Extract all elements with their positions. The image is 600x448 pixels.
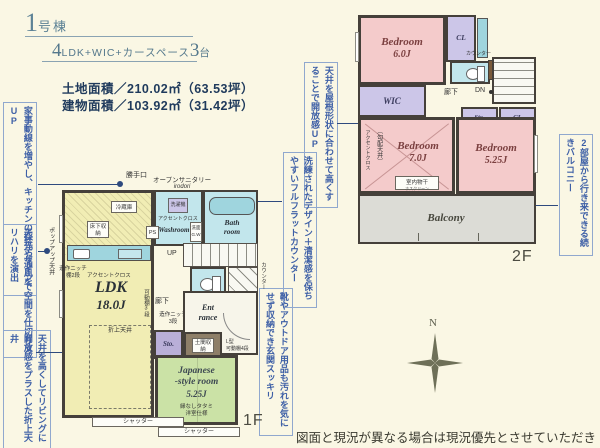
window xyxy=(355,32,359,62)
room-bedroom-6: Bedroom 6.0J xyxy=(358,15,446,85)
dn-dot xyxy=(489,90,493,94)
niche-kitchen-label: 造作ニッチ 棚2段 xyxy=(54,266,92,280)
compass-north-label: N xyxy=(429,317,437,329)
bathtub xyxy=(209,197,255,215)
entrance-door-arc xyxy=(223,313,250,340)
japanese-note: 縁なしタタミ 洋室仕様 xyxy=(158,404,235,418)
cl-top-label: CL xyxy=(448,33,474,42)
room-washroom: 洗濯機 アクセントクロス Washroom 洗面 G.W xyxy=(154,190,203,246)
indoor-drying-label: 室内物干 xyxy=(396,178,438,186)
shutter-label-ldk: シャッター xyxy=(92,417,184,427)
japanese-note-line1: 縁なしタタミ xyxy=(158,404,235,411)
ps-box: PS xyxy=(146,226,159,239)
entrance-line1: Ent xyxy=(191,303,225,313)
bathroom-line2: room xyxy=(213,227,251,236)
fridge-label: 冷蔵庫 xyxy=(111,201,137,213)
ldk-size: 18.0J xyxy=(83,297,139,313)
open-sanitary-label: オープンサニタリー irodori xyxy=(153,174,211,190)
bedroom6-name: Bedroom xyxy=(361,36,443,49)
accent-cloth-2f-label: アクセントクロス xyxy=(364,130,370,170)
wic-label: WIC xyxy=(360,96,424,107)
indoor-drying-box: 室内物干 ホスクリーン xyxy=(395,176,439,190)
bedroom7-name: Bedroom xyxy=(385,140,451,153)
title-underline xyxy=(25,36,193,37)
room-bedroom-7: アクセントクロス 〔勾配天井〕 Bedroom 7.0J 室内物干 ホスクリーン xyxy=(358,117,455,194)
layout-underline xyxy=(42,61,197,62)
compass-rose: N xyxy=(405,315,465,402)
doma-storage-text: 土間収納 xyxy=(195,340,212,353)
vanity-line1: 洗面 xyxy=(191,225,201,232)
leader-line xyxy=(38,251,47,252)
ldk-name: LDK xyxy=(83,278,139,297)
japanese-room-label: Japanese -style room 5.25J xyxy=(158,366,235,400)
entrance-label: Ent rance xyxy=(191,303,225,322)
window xyxy=(59,215,63,243)
popup-ceiling-label: ポップアップ天井 xyxy=(47,227,54,275)
doma-storage-label: 土間収納 xyxy=(192,338,214,353)
annotation-folded-ceiling: 天井を高くしてリビングに開放感をプラスした折上天井 xyxy=(3,330,51,448)
room-bathroom: Bath room xyxy=(203,190,258,246)
room-wic: WIC xyxy=(358,85,426,117)
l-shelf-line2: 可動棚4段 xyxy=(226,346,249,353)
bedroom5-name: Bedroom xyxy=(459,142,533,155)
l-shelf-label: L型 可動棚4段 xyxy=(226,339,249,352)
layout-tail: 台 xyxy=(199,47,211,59)
building-number: 1 xyxy=(25,8,38,37)
japanese-line2: -style room xyxy=(158,377,235,388)
open-sanitary-text: オープンサニタリー xyxy=(153,174,211,184)
floor-1f-tag: 1F xyxy=(243,412,264,430)
hallway-2f-label: 廊下 xyxy=(444,87,458,97)
entrance-line2: rance xyxy=(191,313,225,323)
layout-rooms-number: 4 xyxy=(52,40,62,61)
kitchen-counter xyxy=(67,245,151,261)
balcony: Balcony xyxy=(358,194,536,244)
hallway-1f-label: 廊下 xyxy=(155,296,169,306)
vanity-box: 洗面 G.W xyxy=(190,222,202,242)
japanese-line1: Japanese xyxy=(158,366,235,377)
floor-2f-tag: 2F xyxy=(512,248,533,266)
layout-cars-number: 3 xyxy=(190,40,200,61)
annotation-doma-storage: 靴やアウトドア用品も汚れを気にせず収納でき玄関スッキリ xyxy=(259,288,293,436)
niche-kitchen-line1: 造作ニッチ xyxy=(54,266,92,273)
ldk-label: LDK 18.0J xyxy=(83,278,139,313)
layout-line: 4LDK+WIC+カースペース3台 xyxy=(52,40,211,62)
storage-1f-label: Sto. xyxy=(156,340,181,348)
stairs-2f xyxy=(492,57,536,104)
room-toilet-2f xyxy=(450,61,490,84)
building-area-text: 建物面積／103.92㎡（31.42坪） xyxy=(62,95,254,114)
annotation-balcony: 2部屋から行き来できる続きバルコニー xyxy=(559,134,593,256)
washroom-label: Washroom xyxy=(157,226,191,234)
up-label: UP xyxy=(167,250,177,257)
bedroom6-size: 6.0J xyxy=(361,49,443,61)
window xyxy=(534,135,538,173)
niche-kitchen-line2: 棚2段 xyxy=(54,273,92,280)
bedroom5-label: Bedroom 5.25J xyxy=(459,142,533,167)
bedroom6-label: Bedroom 6.0J xyxy=(361,36,443,61)
dn-label: DN xyxy=(475,87,485,94)
bathroom-label: Bath room xyxy=(213,218,251,236)
washer-label: 洗濯機 xyxy=(169,199,187,212)
balcony-tick xyxy=(478,233,479,241)
toilet-tank-icon xyxy=(477,66,485,82)
layout-text: LDK+WIC+カースペース xyxy=(62,47,190,59)
folded-ceiling-zone: 折上天井 xyxy=(89,325,151,409)
kitchen-sink xyxy=(73,249,90,259)
folded-ceiling-label: 折上天井 xyxy=(90,328,150,336)
japanese-size: 5.25J xyxy=(158,389,235,400)
bathroom-line1: Bath xyxy=(213,218,251,227)
compass-major-points xyxy=(407,333,463,393)
building-suffix: 号棟 xyxy=(38,19,68,34)
back-door-label: 勝手口 xyxy=(126,170,147,180)
room-japanese: Japanese -style room 5.25J 縁なしタタミ 洋室仕様 xyxy=(155,355,238,425)
annotation-flat-counter: 洗練されたデザイン＋清潔感を保ちやすいフルフラットカウンター xyxy=(283,152,317,308)
leader-line xyxy=(38,184,120,185)
counter-side-label: カウンター xyxy=(260,262,266,290)
kitchen-cooktop xyxy=(118,249,142,259)
stairs-1f xyxy=(183,243,258,267)
balcony-tick xyxy=(418,233,419,241)
building-title: 1号棟 xyxy=(25,8,68,38)
bedroom5-size: 5.25J xyxy=(459,155,533,167)
window xyxy=(59,290,63,318)
sloped-ceiling-label: 〔勾配天井〕 xyxy=(375,128,382,164)
bedroom7-size: 7.0J xyxy=(385,153,451,165)
bedroom7-label: Bedroom 7.0J xyxy=(385,140,451,165)
floor-storage-text: 床下収納 xyxy=(90,224,107,237)
vanity-line2: G.W xyxy=(191,232,201,239)
disclaimer-text: 図面と現況が異なる場合は現況優先とさせていただきます。 xyxy=(290,427,596,448)
counter-2f-label: カウンター xyxy=(466,50,491,57)
room-bedroom-5: Bedroom 5.25J xyxy=(456,117,536,194)
washer-box: 洗濯機 xyxy=(168,198,188,213)
balcony-label: Balcony xyxy=(360,212,532,225)
shutter-label-japanese: シャッター xyxy=(158,427,240,437)
indoor-drying-sub: ホスクリーン xyxy=(396,186,438,192)
floor-plan-flyer: 1号棟 4LDK+WIC+カースペース3台 土地面積／210.02㎡（63.53… xyxy=(0,0,600,448)
movable-shelf-label: 可動棚3段 xyxy=(143,289,149,317)
floor-storage-label: 床下収納 xyxy=(87,221,109,238)
